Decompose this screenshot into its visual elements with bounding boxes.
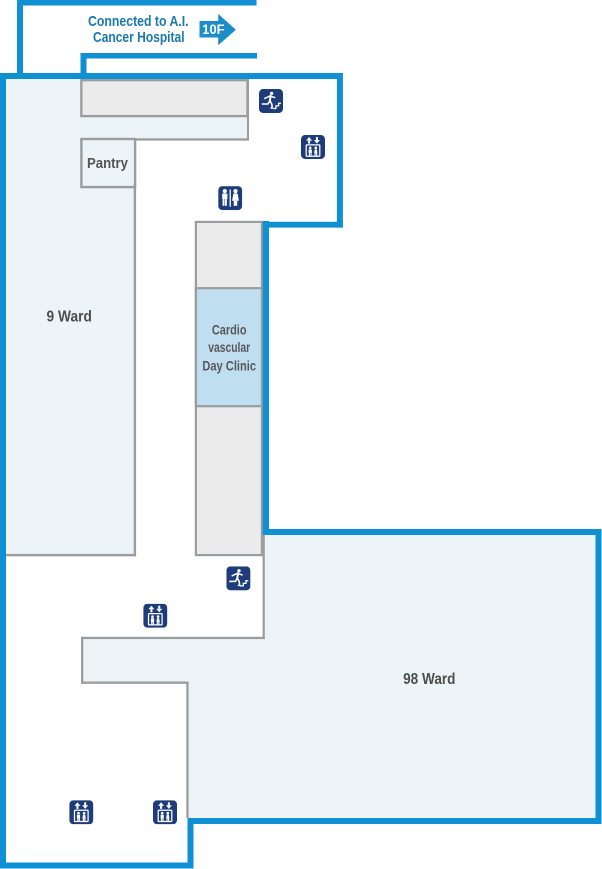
svg-text:vascular: vascular (208, 340, 250, 356)
svg-text:Day Clinic: Day Clinic (202, 359, 256, 375)
svg-text:Connected to A.I.: Connected to A.I. (88, 14, 189, 30)
svg-text:Cancer Hospital: Cancer Hospital (93, 30, 185, 46)
svg-text:Cardio: Cardio (212, 323, 247, 339)
svg-text:Pantry: Pantry (87, 156, 129, 172)
svg-text:10F: 10F (202, 22, 224, 37)
svg-text:98 Ward: 98 Ward (403, 671, 455, 688)
svg-text:9 Ward: 9 Ward (47, 308, 92, 325)
